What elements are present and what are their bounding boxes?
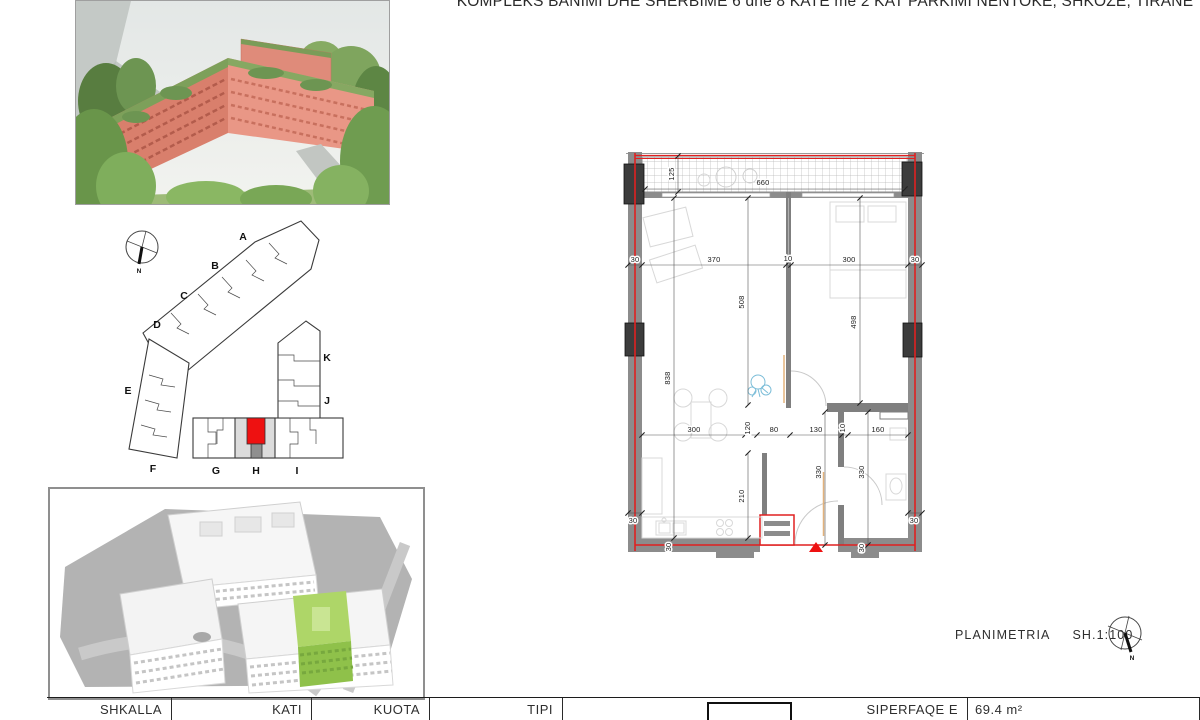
dim-top-2: 10 <box>784 254 793 263</box>
section-label-e: E <box>124 385 131 397</box>
dim-lower-5: 160 <box>871 425 884 434</box>
north-label: N <box>137 268 142 275</box>
section-label-f: F <box>150 463 157 475</box>
footer-area-label: SIPERFAQE E APARTAMENTIT <box>792 698 968 720</box>
dim-lower-3: 130 <box>809 425 822 434</box>
unit-core <box>251 444 262 458</box>
section-label-j: J <box>324 395 330 407</box>
caption-north-label: N <box>1130 655 1135 662</box>
dim-top-4: 30 <box>911 255 920 264</box>
section-label-h: H <box>252 465 260 477</box>
massing-model-image <box>50 489 423 698</box>
footer-area-value: 69.4 m² <box>968 698 1200 720</box>
entry-closet <box>760 515 794 545</box>
dim-lower-2: 80 <box>770 425 779 434</box>
building-render-image <box>76 1 389 204</box>
dim-bedroom-depth: 498 <box>849 315 858 328</box>
dim-top-3: 300 <box>842 255 855 264</box>
north-compass-icon: N <box>126 231 158 275</box>
type-symbol-box <box>707 702 792 720</box>
footer-cell-shkalla: SHKALLA <box>47 698 172 720</box>
furniture <box>642 202 906 538</box>
plan-caption-label: PLANIMETRIA <box>955 628 1050 642</box>
title-block: SHKALLA KATI KUOTA TIPI SIPERFAQE E APAR… <box>47 697 1200 720</box>
section-label-k: K <box>323 352 331 364</box>
caption-north-compass-icon: N <box>1103 612 1153 664</box>
dim-corner-br: 30 <box>910 516 919 525</box>
wall-centerlines <box>635 153 915 551</box>
dim-lower-4: 10 <box>838 424 847 433</box>
exterior-walls <box>628 152 922 558</box>
massing-model-view <box>48 487 425 700</box>
section-label-i: I <box>296 465 299 477</box>
dim-living-depth: 508 <box>737 295 746 308</box>
dimension-ticks <box>625 153 924 547</box>
site-key-plan: N A B C D E F G H I K J <box>105 215 345 480</box>
section-label-g: G <box>212 465 220 477</box>
highlighted-unit <box>247 418 265 444</box>
entrance-triangle-icon <box>809 542 823 552</box>
section-label-a: A <box>239 231 247 243</box>
wall-niche <box>880 412 908 419</box>
section-label-b: B <box>211 260 219 272</box>
dim-balcony-depth: 125 <box>667 167 676 180</box>
dimension-labels: 125 660 30 370 10 300 30 508 498 838 300… <box>629 167 920 552</box>
dim-corner-bl-side: 30 <box>664 543 673 552</box>
footer-cell-tipi: TIPI <box>430 698 563 720</box>
dim-top-0: 30 <box>631 255 640 264</box>
dim-lower-0: 300 <box>687 425 700 434</box>
dim-hall-depth: 330 <box>814 465 823 478</box>
dim-corner-bl: 30 <box>629 516 638 525</box>
footer-cell-kati: KATI <box>172 698 312 720</box>
door-swings <box>791 371 882 544</box>
plant-sketch <box>748 375 771 397</box>
section-label-d: D <box>153 319 161 331</box>
dim-corner-br-side: 30 <box>857 544 866 553</box>
dim-kitchen-depth: 210 <box>737 489 746 502</box>
floor-plan: 125 660 30 370 10 300 30 508 498 838 300… <box>598 140 928 565</box>
dim-bath-depth: 330 <box>857 465 866 478</box>
building-render <box>75 0 390 205</box>
highlighted-building-section <box>293 591 353 687</box>
dim-balcony-width: 660 <box>756 178 769 187</box>
sheet-title: KOMPLEKS BANIMI DHE SHERBIME 6 dhe 8 KAT… <box>440 0 1200 11</box>
drawing-sheet: KOMPLEKS BANIMI DHE SHERBIME 6 dhe 8 KAT… <box>0 0 1200 720</box>
dim-left-depth: 838 <box>663 371 672 384</box>
section-label-c: C <box>180 290 188 302</box>
dim-lower-1: 120 <box>743 421 752 434</box>
footer-cell-kuota: KUOTA <box>312 698 430 720</box>
dim-top-1: 370 <box>707 255 720 264</box>
